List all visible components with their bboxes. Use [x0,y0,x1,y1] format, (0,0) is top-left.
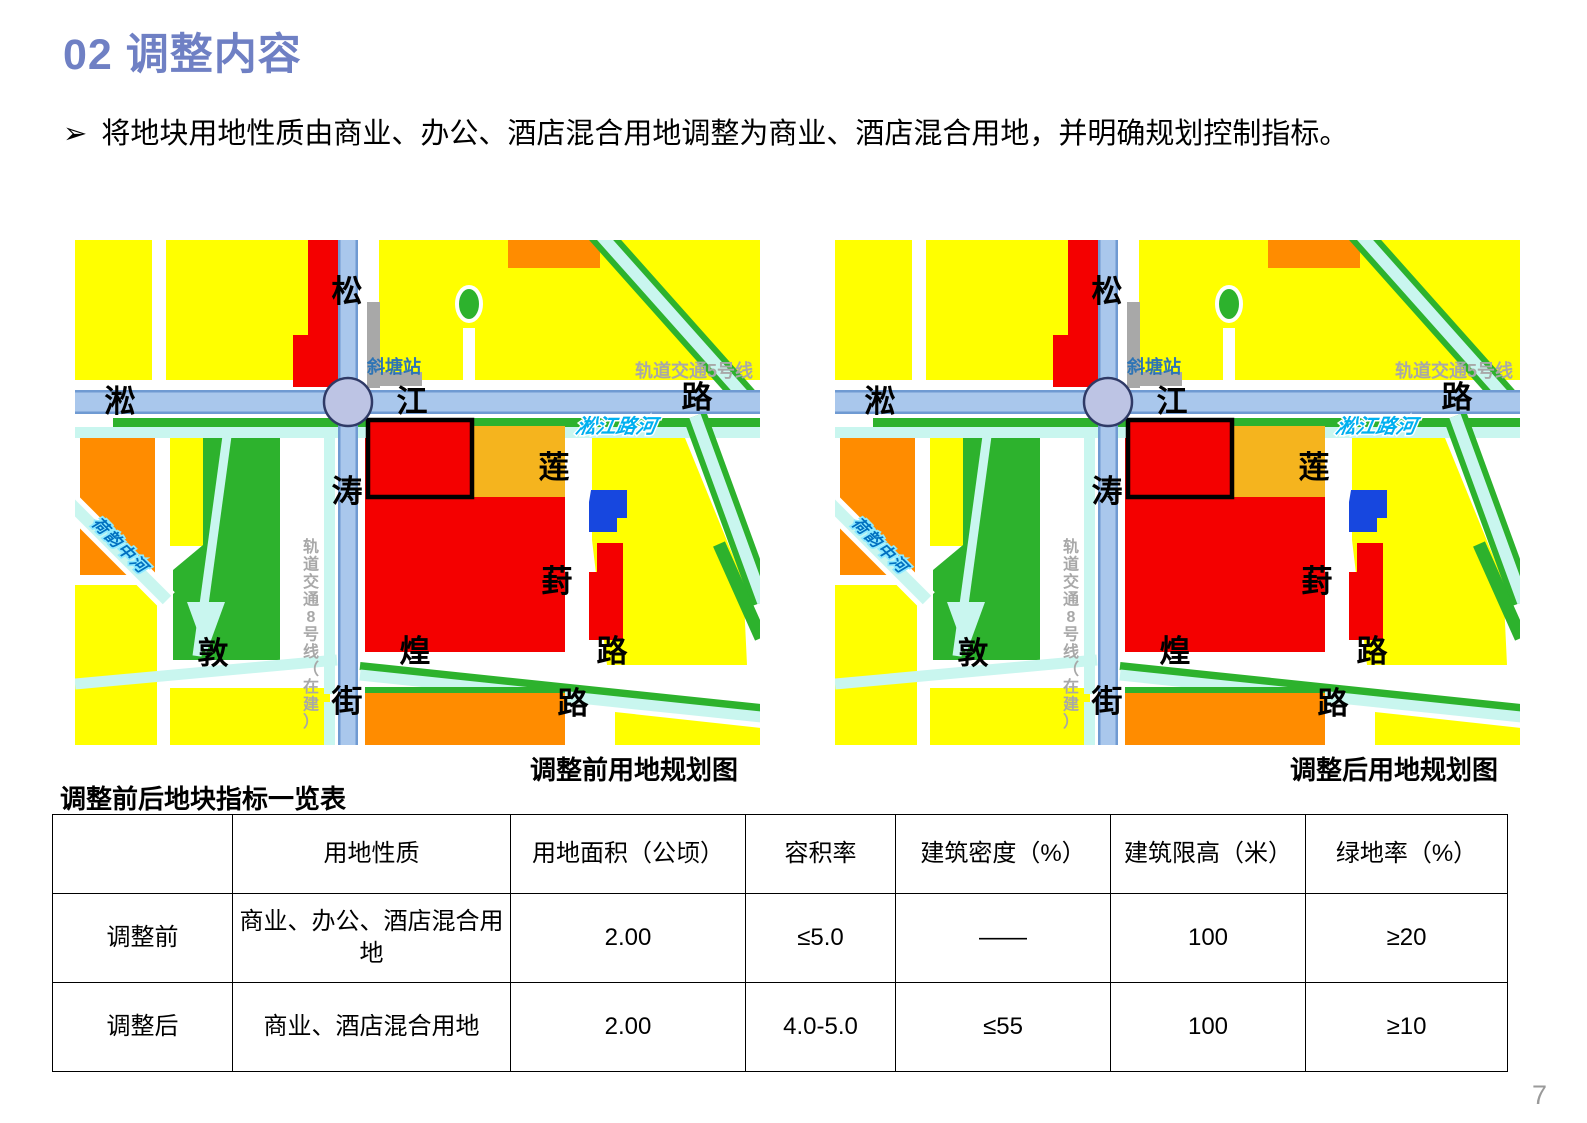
label-road-e-1: 莲 [1299,450,1330,485]
cell-area: 2.00 [511,894,746,983]
orange-plot-bottom [1125,693,1325,745]
label-road-e-1: 莲 [539,450,570,485]
label-road-v-1: 松 [332,274,363,309]
header-height: 建筑限高（米） [1111,815,1306,894]
row-label: 调整后 [53,983,233,1072]
label-road-v-1: 松 [1092,274,1123,309]
tree-symbol [457,287,481,321]
tree-symbol [1217,287,1241,321]
label-road-v-2: 涛 [1092,474,1123,509]
table-header-row: 用地性质 用地面积（公顷） 容积率 建筑密度（%） 建筑限高（米） 绿地率（%） [53,815,1508,894]
label-metro-line5: 轨道交通5号线 [1395,360,1513,381]
bullet-text: 将地块用地性质由商业、办公、酒店混合用地调整为商业、酒店混合用地，并明确规划控制… [101,116,1348,154]
page-number: 7 [1532,1080,1547,1111]
label-road-s-3: 路 [1357,634,1389,669]
indicator-table: 用地性质 用地面积（公顷） 容积率 建筑密度（%） 建筑限高（米） 绿地率（%）… [52,814,1508,1072]
cell-height: 100 [1111,894,1306,983]
table-title: 调整前后地块指标一览表 [60,779,346,816]
cell-green: ≥10 [1306,983,1508,1072]
label-road-e-2: 葑 [542,564,573,599]
label-road-s-1: 敦 [958,636,989,671]
header-far: 容积率 [746,815,896,894]
label-station-name: 斜塘站 [1126,356,1181,377]
cell-land-use: 商业、酒店混合用地 [233,983,511,1072]
slide: 02 调整内容 ➢ 将地块用地性质由商业、办公、酒店混合用地调整为商业、酒店混合… [0,0,1587,1123]
cell-far: 4.0-5.0 [746,983,896,1072]
label-road-h-1: 淞 [105,384,136,419]
header-area: 用地面积（公顷） [511,815,746,894]
label-station-name: 斜塘站 [366,356,421,377]
row-label: 调整前 [53,894,233,983]
cell-area: 2.00 [511,983,746,1072]
orange-plot-ne [1268,240,1360,268]
label-road-e-3: 路 [558,686,590,721]
label-road-h-2: 江 [1157,384,1188,419]
orange-plot-ne [508,240,600,268]
label-river-main: 淞江路河 [574,415,662,438]
label-road-h-2: 江 [397,384,428,419]
map-svg-after: 松涛街淞江路莲葑路敦煌路斜塘站轨道交通5号线淞江路河荷韵中河轨道交通8号线（在建… [835,240,1520,745]
header-density: 建筑密度（%） [896,815,1111,894]
page-title: 02 调整内容 [63,20,302,82]
label-road-e-3: 路 [1318,686,1350,721]
cell-density: ≤55 [896,983,1111,1072]
subject-plot-outline [1128,420,1232,497]
map-svg-before: 松涛街淞江路莲葑路敦煌路斜塘站轨道交通5号线淞江路河荷韵中河轨道交通8号线（在建… [75,240,760,745]
label-road-v-3: 街 [331,684,363,719]
label-road-v-3: 街 [1091,684,1123,719]
table-row: 调整后 商业、酒店混合用地 2.00 4.0-5.0 ≤55 100 ≥10 [53,983,1508,1072]
table-row: 调整前 商业、办公、酒店混合用地 2.00 ≤5.0 —— 100 ≥20 [53,894,1508,983]
header-green: 绿地率（%） [1306,815,1508,894]
cell-green: ≥20 [1306,894,1508,983]
label-road-s-2: 煌 [400,634,431,669]
cell-far: ≤5.0 [746,894,896,983]
caption-after-map: 调整后用地规划图 [835,750,1520,787]
cell-density: —— [896,894,1111,983]
subject-plot-outline [368,420,472,497]
land-use-map-after: 松涛街淞江路莲葑路敦煌路斜塘站轨道交通5号线淞江路河荷韵中河轨道交通8号线（在建… [835,240,1520,745]
cell-height: 100 [1111,983,1306,1072]
label-road-e-2: 葑 [1302,564,1333,599]
land-use-map-before: 松涛街淞江路莲葑路敦煌路斜塘站轨道交通5号线淞江路河荷韵中河轨道交通8号线（在建… [75,240,760,745]
label-metro-line5: 轨道交通5号线 [635,360,753,381]
label-road-h-3: 路 [682,380,714,415]
label-metro-line8: 轨道交通8号线（在建） [1063,537,1079,731]
label-road-s-2: 煌 [1160,634,1191,669]
cell-land-use: 商业、办公、酒店混合用地 [233,894,511,983]
label-road-s-1: 敦 [198,636,229,671]
label-metro-line8: 轨道交通8号线（在建） [303,537,319,731]
metro-station-circle [324,378,372,426]
label-road-h-3: 路 [1442,380,1474,415]
label-road-h-1: 淞 [865,384,896,419]
metro-station-circle [1084,378,1132,426]
header-land-use: 用地性质 [233,815,511,894]
bullet-arrow-icon: ➢ [63,116,87,154]
summary-bullet: ➢ 将地块用地性质由商业、办公、酒店混合用地调整为商业、酒店混合用地，并明确规划… [63,116,1523,154]
label-river-main: 淞江路河 [1334,415,1422,438]
orange-plot-bottom [365,693,565,745]
header-empty [53,815,233,894]
label-road-v-2: 涛 [332,474,363,509]
label-road-s-3: 路 [597,634,629,669]
